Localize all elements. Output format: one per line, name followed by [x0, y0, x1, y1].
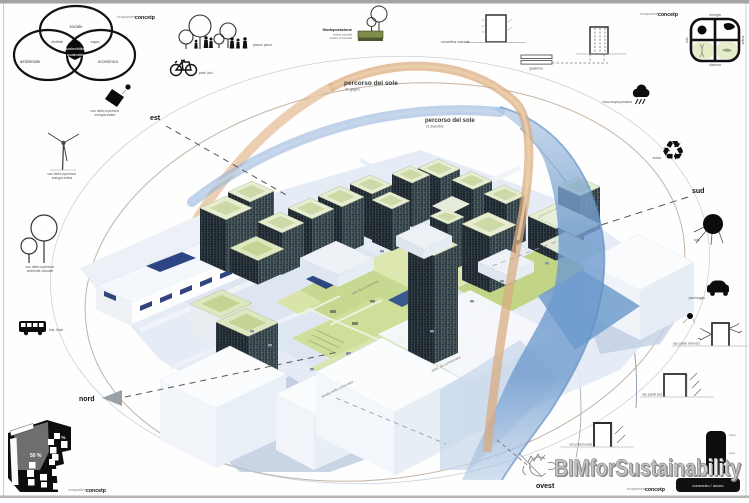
svg-text:21 giugno: 21 giugno — [345, 88, 360, 92]
svg-text:acqua: acqua — [741, 36, 745, 45]
svg-text:uso pareti ovest: uso pareti ovest — [569, 443, 592, 447]
svg-text:sociale: sociale — [69, 24, 83, 29]
svg-text:parcheggio: parcheggio — [689, 296, 705, 300]
svg-text:sole: sole — [694, 238, 700, 242]
svg-text:50 %: 50 % — [55, 435, 65, 440]
svg-text:park, bici: park, bici — [199, 71, 213, 75]
svg-text:concetp: concetp — [86, 488, 106, 494]
svg-text:equo: equo — [91, 39, 101, 44]
svg-text:hotel: hotel — [729, 433, 736, 437]
svg-text:uso pareti sud: uso pareti sud — [642, 393, 662, 397]
svg-text:♻: ♻ — [661, 136, 685, 166]
svg-text:vivibile: vivibile — [51, 39, 64, 44]
svg-text:sistema: sistema — [709, 63, 721, 67]
svg-text:ecoquartiere: ecoquartiere — [627, 487, 646, 491]
svg-text:concetp: concetp — [658, 12, 678, 18]
svg-text:21 dicembre: 21 dicembre — [426, 125, 444, 129]
svg-text:piazze parco: piazze parco — [253, 43, 272, 47]
svg-text:energia eolica: energia eolica — [52, 176, 73, 180]
svg-text:filodepurazione: filodepurazione — [322, 27, 352, 32]
svg-text:sud: sud — [692, 188, 704, 195]
svg-text:est: est — [150, 115, 161, 122]
svg-text:50 %: 50 % — [30, 453, 42, 459]
svg-text:convettiva naturale: convettiva naturale — [441, 40, 470, 44]
svg-text:consorzio / lavoro: consorzio / lavoro — [692, 483, 724, 488]
svg-text:ambiente naturale: ambiente naturale — [27, 269, 54, 273]
svg-text:nord: nord — [79, 396, 95, 403]
svg-text:energia: energia — [709, 13, 720, 17]
svg-text:ambientale: ambientale — [20, 59, 41, 64]
svg-text:sole: sole — [685, 37, 689, 43]
svg-text:riuso acqua piovana: riuso acqua piovana — [602, 100, 632, 104]
svg-text:ovest: ovest — [536, 483, 555, 490]
svg-text:percorso del sole: percorso del sole — [344, 80, 398, 87]
svg-text:energia solare: energia solare — [95, 113, 116, 117]
svg-text:giaderma: giaderma — [529, 67, 543, 71]
svg-text:ricicla: ricicla — [653, 156, 662, 160]
svg-text:concetp: concetp — [135, 15, 155, 21]
svg-text:uso pareti nord-est: uso pareti nord-est — [673, 342, 700, 346]
svg-text:concetp: concetp — [645, 487, 665, 493]
svg-text:ecoquartiere: ecoquartiere — [68, 488, 87, 492]
svg-text:bus, linde: bus, linde — [49, 328, 63, 332]
svg-text:percorso del sole: percorso del sole — [425, 118, 475, 124]
svg-text:economico: economico — [98, 59, 119, 64]
svg-text:sustainable: sustainable — [67, 53, 83, 57]
svg-text:vasche di raccolta: vasche di raccolta — [330, 36, 353, 40]
svg-text:ecoquartiere: ecoquartiere — [117, 15, 136, 19]
svg-text:ecoquartiere: ecoquartiere — [640, 12, 659, 16]
svg-text:sostenibilita: sostenibilita — [66, 47, 85, 51]
